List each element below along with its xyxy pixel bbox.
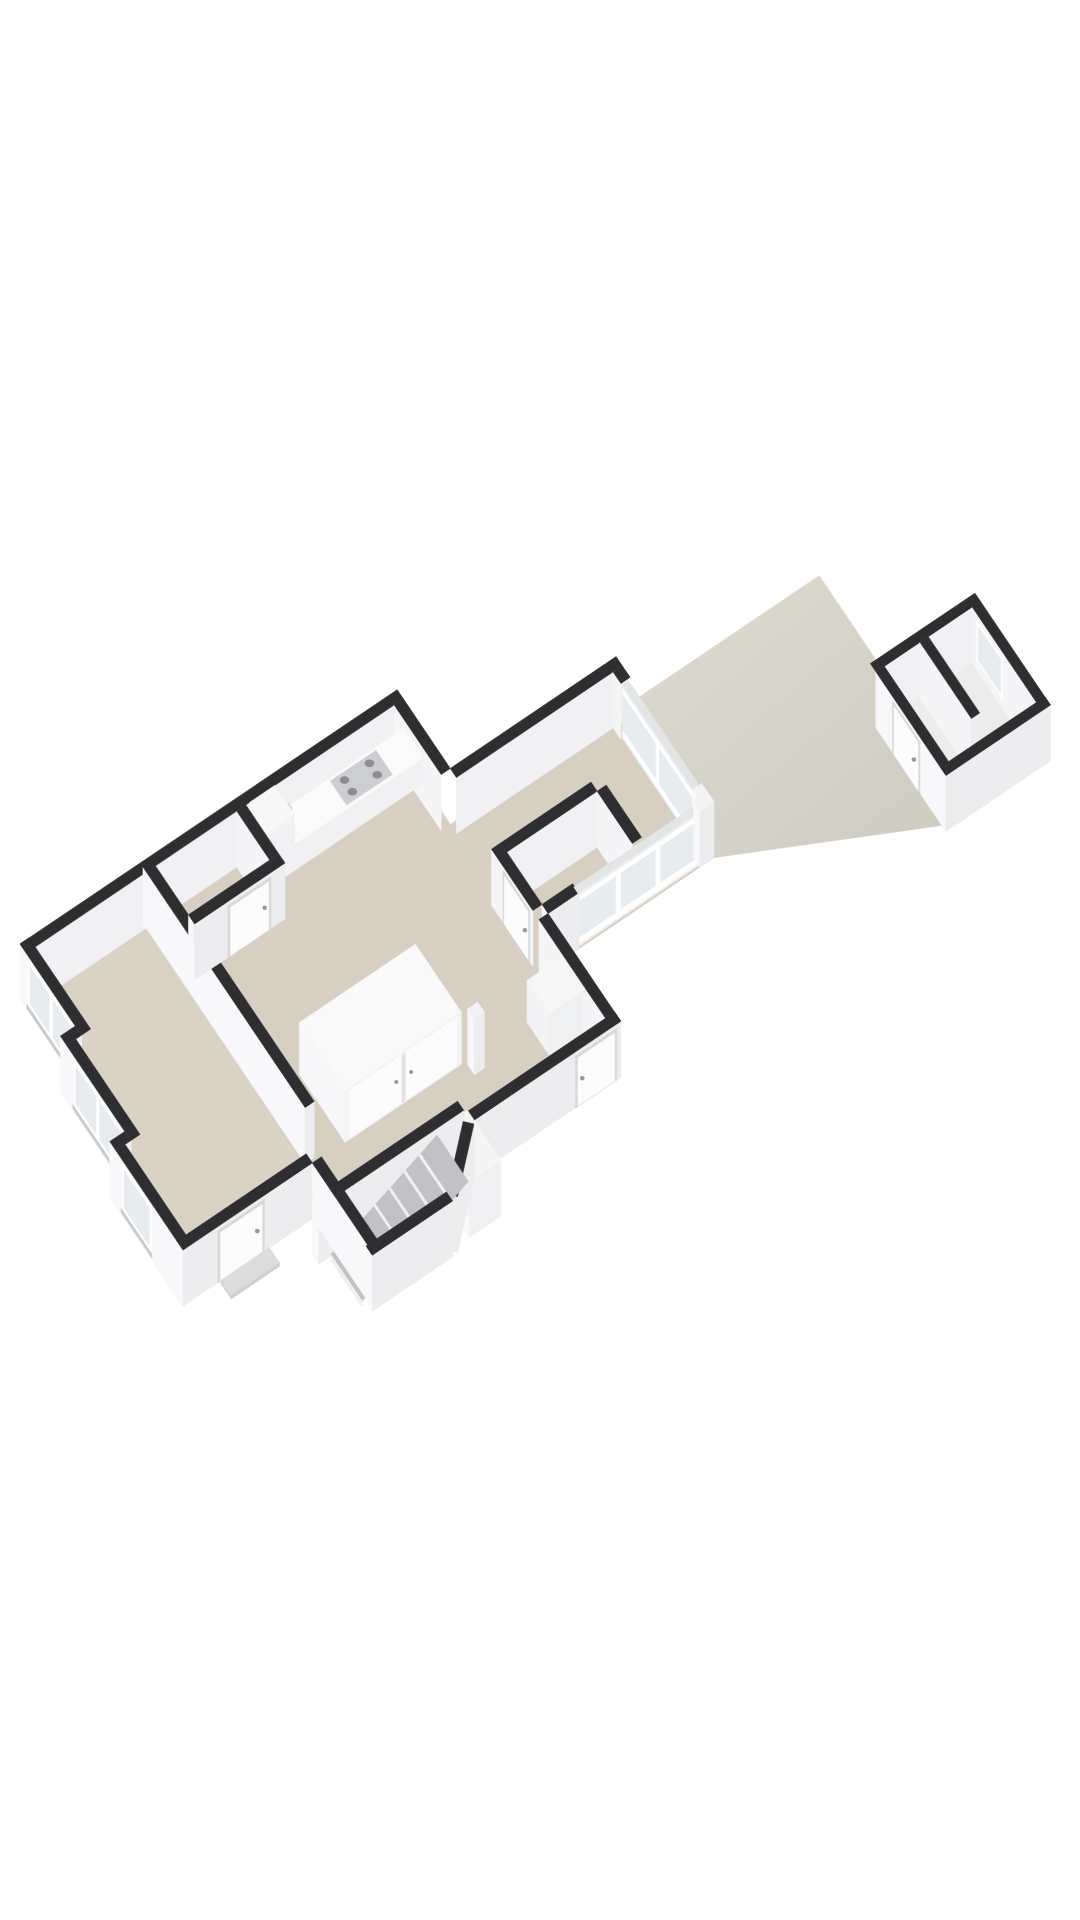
shed-door-handle — [912, 757, 917, 762]
wardrobe-door-gap — [402, 1053, 405, 1103]
stairbay-front-wall-face-w — [366, 1246, 372, 1311]
facade-step-wall-2-face-w — [110, 1142, 116, 1207]
facade-window-1-mullion — [50, 996, 53, 1038]
closet-front-wall-face-w — [189, 915, 195, 980]
stove-burner-4 — [372, 771, 382, 779]
stove-burner-2 — [348, 788, 358, 796]
stove-burner-1 — [340, 776, 350, 784]
shed-front-wall-face-w — [940, 767, 946, 831]
entrance-wall-face-w — [177, 1241, 183, 1306]
backroom-door-handle — [523, 928, 527, 932]
floorplan-3d-render — [0, 0, 1080, 1920]
facade-step-wall-1-face-w — [60, 1036, 66, 1101]
wardrobe-handle-left — [394, 1080, 398, 1084]
wing-side-post-face-s — [700, 802, 714, 868]
front-door-handle — [255, 1229, 260, 1234]
side-door-handle — [580, 1076, 584, 1080]
stove-burner-3 — [365, 759, 375, 767]
hall-column-face-s — [474, 1012, 484, 1075]
closet-door-handle — [263, 906, 267, 910]
hall-column-face-w — [468, 1009, 475, 1075]
facade-window-2-mullion — [96, 1098, 99, 1140]
wing-side-post-face-w — [694, 802, 700, 867]
floorplan-canvas — [0, 0, 1080, 1920]
wardrobe-handle-right — [409, 1070, 413, 1074]
